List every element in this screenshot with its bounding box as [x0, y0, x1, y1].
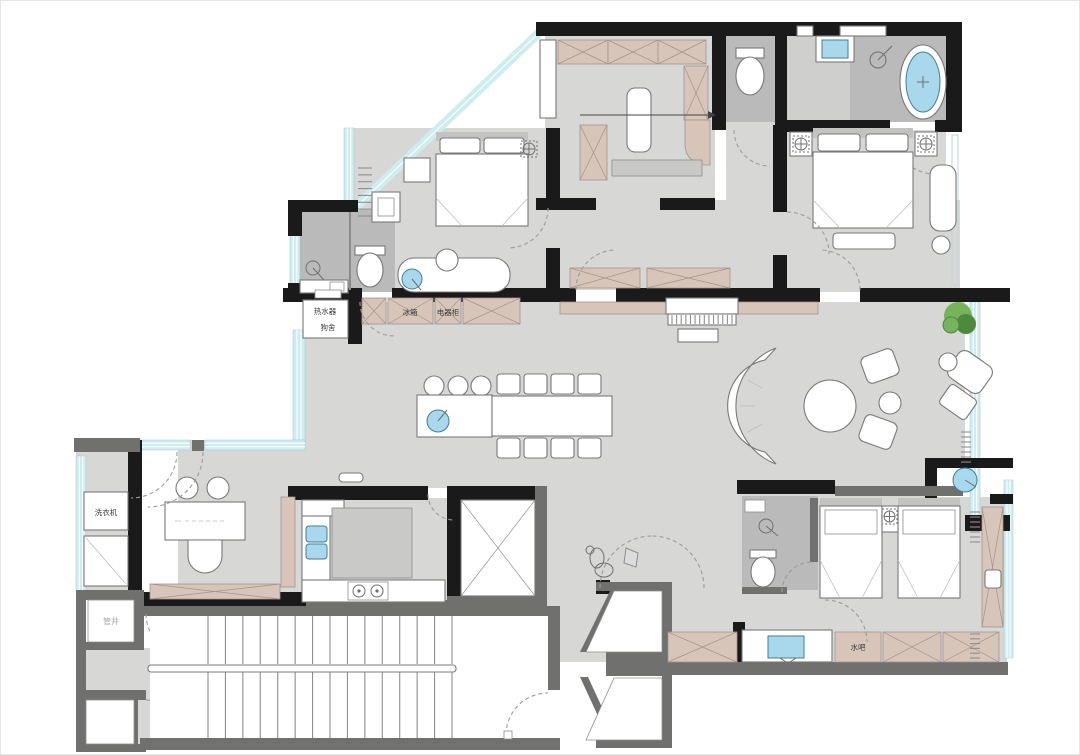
- wall: [546, 128, 560, 206]
- dining-chair: [551, 374, 574, 394]
- toilet-hall-floor: [726, 120, 775, 202]
- wall: [660, 198, 715, 210]
- water-heater-box: [303, 300, 348, 338]
- wall: [775, 36, 787, 122]
- wall: [737, 480, 835, 494]
- wall: [348, 288, 362, 344]
- utility-shelf: [315, 290, 341, 298]
- wall-gray: [548, 606, 560, 690]
- plant-leaf: [943, 317, 959, 333]
- wall-gray: [535, 486, 547, 608]
- wall: [288, 486, 428, 500]
- vestibule-wall: [596, 740, 672, 748]
- wall: [447, 486, 545, 500]
- pillow: [825, 510, 877, 534]
- water-heater-label: 热水器: [314, 306, 337, 316]
- shaft-wall: [76, 590, 86, 750]
- toilet-icon: [751, 557, 775, 587]
- wall-gray: [74, 438, 140, 452]
- coffee-table: [804, 380, 856, 432]
- bar-stool: [471, 376, 491, 396]
- burner-dot: [357, 589, 360, 592]
- piano-bench: [678, 329, 718, 342]
- wall: [536, 198, 596, 210]
- wall: [712, 22, 726, 130]
- stair-top-wall: [140, 606, 560, 616]
- dining-chair: [551, 438, 574, 458]
- cabinet-inner: [378, 198, 394, 216]
- tv-screen: [768, 636, 804, 658]
- pillow: [866, 134, 908, 151]
- dog-house-label: 狗舍: [321, 322, 336, 332]
- bottom-right-wall: [660, 662, 1008, 675]
- stairwell: [148, 616, 548, 739]
- wall: [536, 22, 726, 36]
- dining-table: [492, 396, 612, 436]
- bath-niche: [797, 26, 813, 36]
- kitchen-sink-bowl: [306, 544, 327, 559]
- piano-body: [666, 298, 738, 314]
- wall: [990, 494, 1013, 504]
- washing-machine-label: 洗衣机: [95, 507, 118, 517]
- wardrobe-mirror: [985, 570, 1001, 588]
- stair-interior: [150, 616, 548, 738]
- dining-chair: [497, 438, 520, 458]
- ensuite-window: [290, 233, 300, 285]
- powder-room: [953, 468, 977, 492]
- twin-bath-partition: [810, 498, 818, 562]
- vestibule-wall: [606, 652, 672, 676]
- vanity-sink: [822, 40, 848, 58]
- bed-bench: [833, 233, 895, 249]
- study-side-cabinet: [281, 497, 295, 587]
- side-table: [939, 353, 957, 371]
- bath-shelf: [745, 500, 765, 512]
- wall: [946, 22, 962, 132]
- lounge-chair: [930, 165, 956, 231]
- twin-head-wall: [835, 486, 963, 496]
- piano-keys: [668, 314, 736, 325]
- dining-chair: [578, 438, 601, 458]
- toilet-icon: [736, 57, 764, 95]
- pillow: [440, 138, 480, 153]
- kitchen-sink-bowl: [306, 526, 327, 542]
- radiator-icon: [970, 512, 980, 542]
- bed-headboard: [898, 498, 960, 506]
- stool: [207, 477, 229, 499]
- pillow: [903, 510, 955, 534]
- bed-mattress: [436, 154, 528, 226]
- vestibule-wall: [596, 582, 672, 591]
- nightstand: [404, 158, 430, 182]
- appliance-cabinet-label: 电器柜: [437, 307, 460, 317]
- wall: [546, 288, 576, 302]
- lower-shaft-room: [86, 700, 134, 744]
- balcony-door-leaf: [192, 440, 204, 451]
- wall: [773, 125, 787, 212]
- stair-door-leaf: [504, 731, 512, 739]
- water-bar-label: 水吧: [851, 642, 866, 652]
- wall: [288, 200, 302, 236]
- bar-stool: [424, 376, 444, 396]
- dining-left-window: [293, 330, 305, 440]
- dining-chair: [497, 374, 520, 394]
- twin-bath-wall: [742, 587, 787, 594]
- elevator: [461, 500, 535, 596]
- bed-headboard: [820, 498, 882, 506]
- balcony-window-right: [205, 440, 305, 450]
- stair-handrail: [148, 665, 456, 672]
- dining-chair: [524, 374, 547, 394]
- closet-island-bench: [627, 88, 651, 152]
- wall: [935, 120, 960, 132]
- wall: [925, 458, 1013, 468]
- cooktop: [348, 582, 388, 600]
- pillow: [818, 134, 860, 151]
- dining-chair: [524, 438, 547, 458]
- stair-bottom-wall: [140, 738, 560, 750]
- floor-plan-drawing: 热水器 狗舍 冰箱 电器柜: [0, 0, 1080, 755]
- floor-plan-page: 热水器 狗舍 冰箱 电器柜: [0, 0, 1080, 755]
- closet-dresser: [612, 160, 702, 176]
- study-chair: [188, 540, 222, 573]
- wall: [447, 486, 461, 608]
- toilet-icon: [357, 253, 383, 287]
- wall: [920, 288, 1010, 302]
- vestibule-wall: [662, 676, 672, 746]
- kitchen-block: [332, 508, 412, 578]
- side-table: [932, 236, 950, 254]
- pillow: [484, 138, 524, 153]
- wall-shelf: [339, 473, 363, 482]
- side-table: [879, 392, 901, 414]
- bath-niche: [840, 26, 886, 36]
- bed-mattress: [813, 152, 913, 228]
- shaft-wall: [76, 642, 144, 650]
- shaft-wall: [76, 590, 144, 600]
- pipe-shaft-label: 管井: [103, 616, 119, 626]
- wall: [546, 248, 560, 292]
- burner-dot: [375, 589, 378, 592]
- dining-chair: [578, 374, 601, 394]
- fridge-label: 冰箱: [403, 307, 418, 317]
- round-table: [436, 249, 458, 271]
- radiator-icon: [961, 432, 971, 462]
- wardrobe-white: [540, 40, 556, 118]
- twin-right-window: [1004, 480, 1013, 658]
- bar-stool: [448, 376, 468, 396]
- wall: [128, 440, 142, 600]
- shaft-wall: [134, 596, 144, 646]
- bedroom1-left-window: [344, 128, 354, 210]
